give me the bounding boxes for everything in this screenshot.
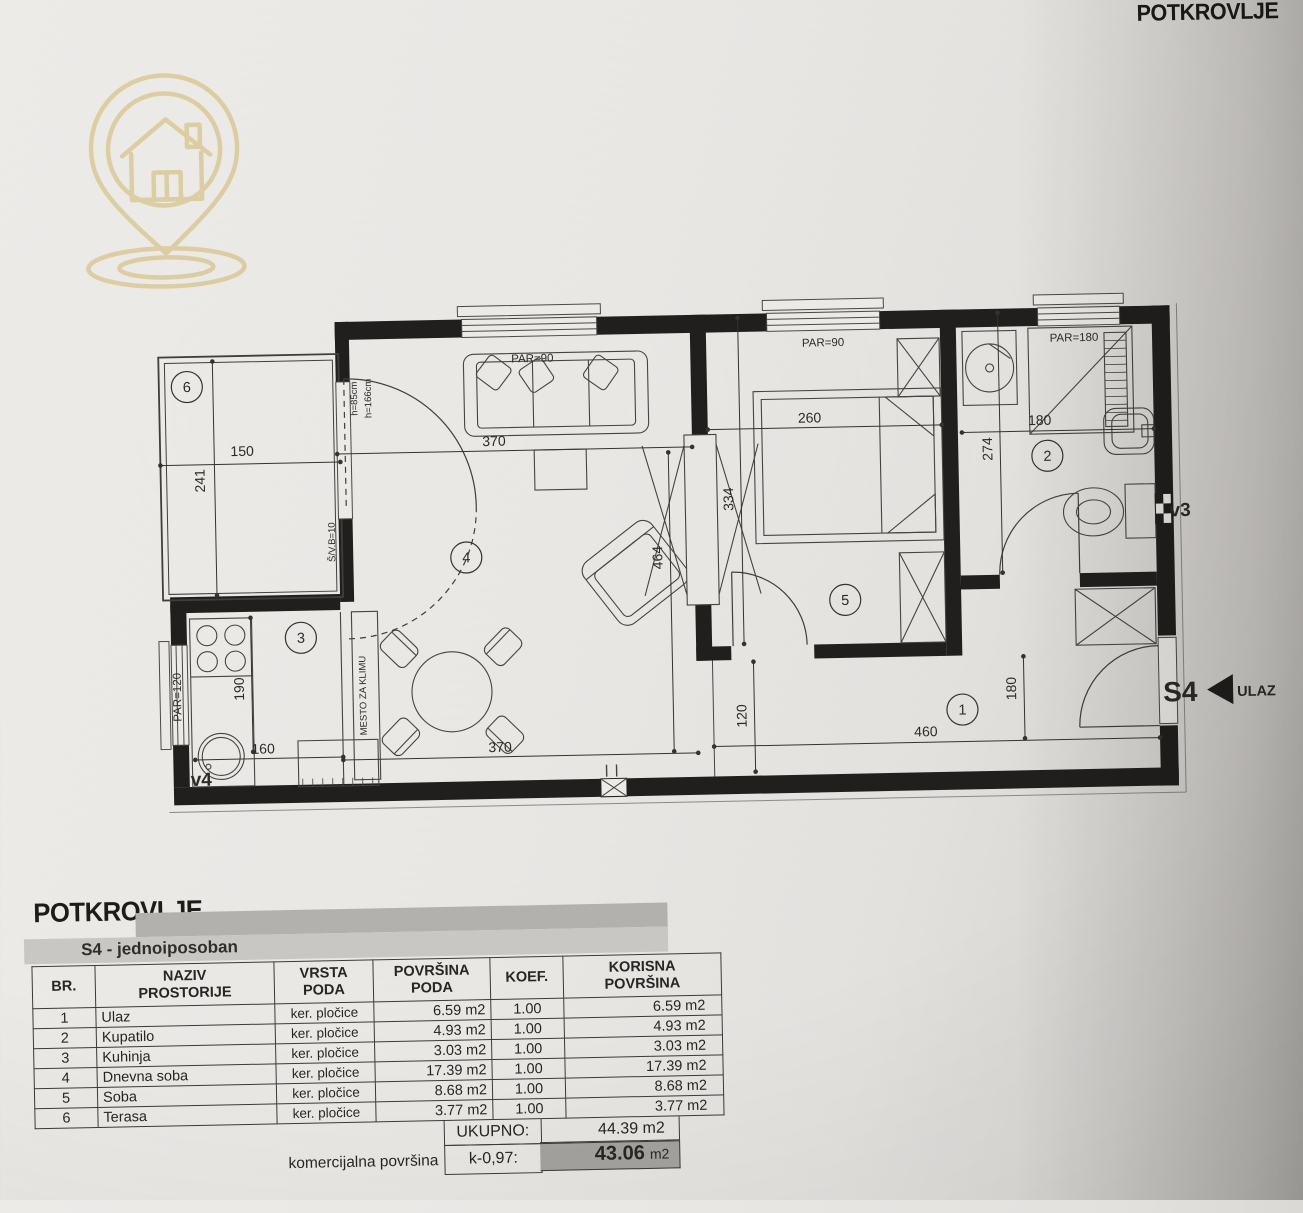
commercial-value-cell: 43.06 m2 xyxy=(540,1140,681,1171)
toilet xyxy=(1063,484,1156,540)
commercial-area-label: komercijalna površina xyxy=(190,1152,438,1175)
dim-terrace-h: 241 xyxy=(191,469,207,493)
par-bedroom-label: PAR=90 xyxy=(802,337,845,350)
room-6: 6 xyxy=(183,380,191,396)
coffee-table xyxy=(534,449,587,490)
dim-kitchen-w: 160 xyxy=(251,740,275,756)
room-1: 1 xyxy=(958,702,966,718)
dimension-labels: 370 260 334 150 241 464 370 120 460 180 … xyxy=(191,405,1059,761)
corridor-line xyxy=(712,661,714,777)
col-floor: VRSTAPODA xyxy=(274,960,374,1004)
area-table: BR. NAZIVPROSTORIJE VRSTAPODA POVRŠINAPO… xyxy=(31,952,724,1129)
room-4: 4 xyxy=(462,550,470,566)
svg-text:h=166cm: h=166cm xyxy=(363,379,375,419)
col-koef: KOEF. xyxy=(490,956,564,1000)
commercial-koef: k-0,97: xyxy=(444,1143,543,1175)
page-title: POTKROVLJE xyxy=(1136,0,1278,27)
par-kitchen-label: PAR=120 xyxy=(172,673,185,722)
dim-bedroom-w: 260 xyxy=(798,409,822,425)
double-bed xyxy=(753,388,944,544)
dim-bath-h: 274 xyxy=(979,437,995,461)
svg-text:MESTO ZA KLIMU: MESTO ZA KLIMU xyxy=(357,656,370,736)
walls xyxy=(165,305,1179,805)
dim-living-top: 370 xyxy=(482,433,506,449)
dim-bedroom-h: 334 xyxy=(720,487,736,511)
bathroom-door xyxy=(998,493,1080,575)
sink xyxy=(1103,408,1154,455)
unit-label: S4 xyxy=(1163,676,1198,708)
dim-bath-w: 180 xyxy=(1028,412,1052,428)
dim-kitchen-h: 190 xyxy=(231,677,247,701)
col-area: POVRŠINAPODA xyxy=(373,958,491,1003)
ac-unit-box: MESTO ZA KLIMU xyxy=(351,611,380,779)
shaft-wardrobe xyxy=(642,434,761,606)
entrance-door xyxy=(1078,646,1160,728)
floor-plan: MESTO ZA KLIMU xyxy=(139,283,1303,830)
dim-hall-w: 460 xyxy=(914,723,938,739)
room-5: 5 xyxy=(841,593,849,609)
dim-living-bottom: 370 xyxy=(488,739,512,755)
svg-text:Š/V.B=10: Š/V.B=10 xyxy=(327,522,339,562)
unit-subheading: S4 - jednoiposoban xyxy=(81,937,238,960)
threshold-detail xyxy=(600,764,627,797)
armchair xyxy=(577,516,693,630)
dim-corridor: 120 xyxy=(733,704,749,728)
plan-outer-edge xyxy=(160,303,1187,812)
vent-v4-label: v4 xyxy=(191,770,213,791)
dim-terrace-w: 150 xyxy=(230,443,254,459)
room-2: 2 xyxy=(1043,449,1051,465)
boiler xyxy=(962,330,1017,405)
entrance-arrow-icon xyxy=(1207,674,1234,705)
dim-hall-h: 180 xyxy=(1003,677,1019,701)
entrance-label-group: S4 ULAZ xyxy=(1163,673,1276,707)
par-living-label: PAR=90 xyxy=(511,353,554,366)
col-name: NAZIVPROSTORIJE xyxy=(95,962,275,1008)
total-value: 44.39 m2 xyxy=(540,1116,680,1143)
commercial-unit: m2 xyxy=(650,1146,670,1162)
house-location-pin-icon xyxy=(56,59,273,299)
printed-page: POTKROVLJE xyxy=(0,0,1303,1213)
col-br: BR. xyxy=(32,966,96,1010)
bedroom-wardrobe xyxy=(899,552,946,643)
hall-wardrobe xyxy=(1075,588,1156,646)
total-label: UKUPNO: xyxy=(444,1119,542,1146)
dim-living-h: 464 xyxy=(649,546,665,570)
commercial-value: 43.06 xyxy=(595,1142,646,1166)
col-useful: KORISNAPOVRŠINA xyxy=(563,953,722,999)
sofa xyxy=(463,351,649,437)
entrance-label: ULAZ xyxy=(1237,683,1276,700)
svg-text:h=85cm: h=85cm xyxy=(349,381,361,415)
stove xyxy=(197,625,246,672)
vent-v3-label: v3 xyxy=(1169,500,1191,521)
room-3: 3 xyxy=(297,631,305,647)
room-number-texts: 6 4 3 5 2 1 xyxy=(183,363,1057,734)
par-bath-label: PAR=180 xyxy=(1050,332,1099,345)
